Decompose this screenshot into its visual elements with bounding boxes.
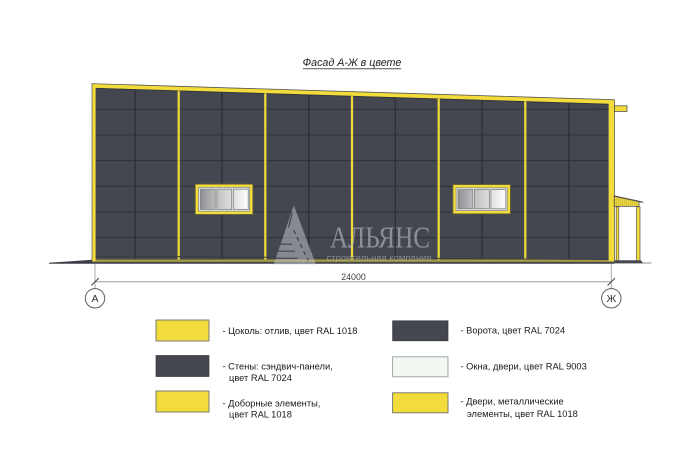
svg-text:Ж: Ж <box>606 293 616 305</box>
svg-text:- Двери, металлические: - Двери, металлические <box>461 397 564 407</box>
svg-text:А: А <box>91 293 98 305</box>
svg-text:- Окна, двери, цвет RAL 9003: - Окна, двери, цвет RAL 9003 <box>461 361 587 371</box>
svg-text:цвет RAL 1018: цвет RAL 1018 <box>229 409 292 419</box>
svg-text:24000: 24000 <box>341 272 366 282</box>
svg-text:цвет RAL 7024: цвет RAL 7024 <box>229 373 292 383</box>
svg-text:- Доборные элементы,: - Доборные элементы, <box>223 398 321 408</box>
svg-text:элементы, цвет RAL 1018: элементы, цвет RAL 1018 <box>467 409 578 419</box>
svg-text:строительная компания: строительная компания <box>327 253 432 263</box>
svg-text:Фасад А-Ж в цвете: Фасад А-Ж в цвете <box>303 57 402 69</box>
svg-text:- Ворота, цвет RAL 7024: - Ворота, цвет RAL 7024 <box>461 325 566 335</box>
svg-text:- Стены: сэндвич-панели,: - Стены: сэндвич-панели, <box>223 362 333 372</box>
svg-text:АЛЬЯНС: АЛЬЯНС <box>330 221 430 255</box>
svg-text:- Цоколь: отлив, цвет RAL 1018: - Цоколь: отлив, цвет RAL 1018 <box>223 326 358 336</box>
